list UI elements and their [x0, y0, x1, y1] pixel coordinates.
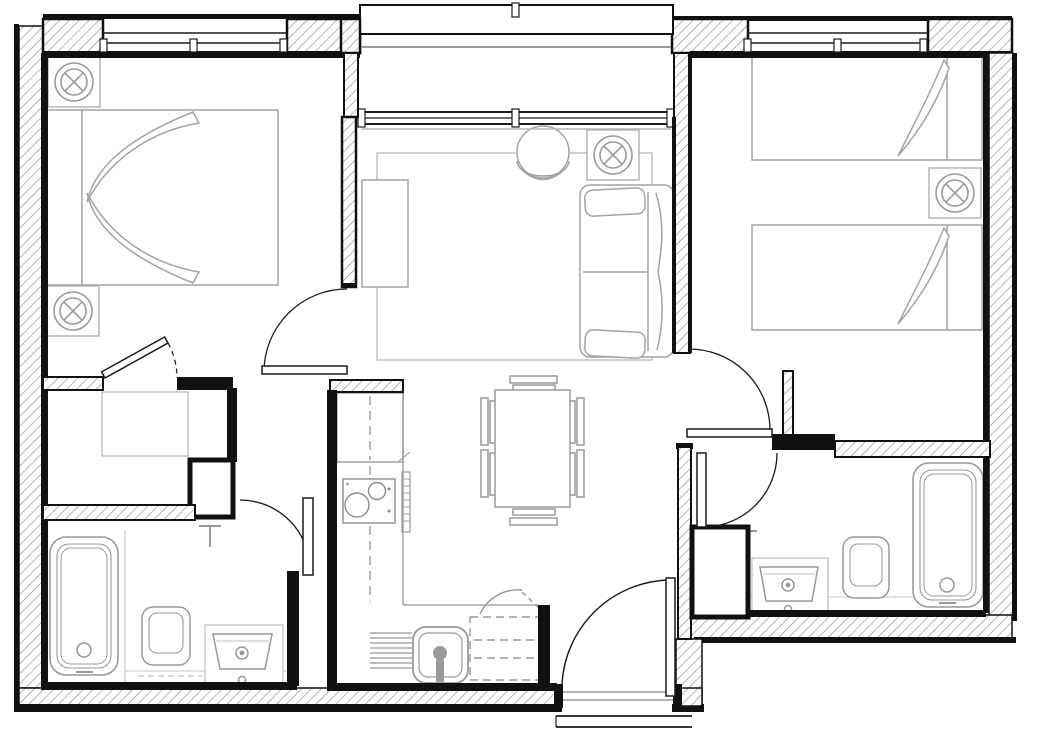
wall-bedroom2-south	[772, 434, 835, 450]
vanity-basin	[205, 625, 283, 688]
wall-pier	[341, 19, 360, 53]
armchair	[517, 126, 569, 180]
ceiling-light-icon	[929, 168, 981, 218]
sofa-pillow	[584, 187, 645, 216]
service-shaft	[692, 527, 748, 617]
dining-set	[481, 376, 584, 525]
dining-table	[495, 390, 570, 507]
wall-top-inner-face	[690, 51, 1012, 58]
tap-icon	[433, 646, 447, 660]
wall-stub	[783, 371, 793, 435]
chair	[577, 450, 584, 497]
door-leaf	[697, 453, 706, 527]
door-leaf	[262, 366, 347, 374]
wall-pier	[43, 19, 103, 53]
wall-closet-top	[43, 377, 103, 390]
ceiling-light-icon	[47, 286, 99, 336]
door-leaf	[666, 578, 675, 696]
hob-2-burner	[343, 479, 395, 523]
wall-entry-lobby	[678, 447, 691, 639]
wall-bathroom1-right	[287, 571, 299, 686]
chair	[577, 398, 584, 445]
sofa-pillow	[584, 329, 645, 358]
bathtub	[50, 537, 118, 675]
service-shaft	[190, 460, 233, 517]
chair	[481, 450, 488, 497]
wall-right	[989, 53, 1013, 617]
door-jamb	[554, 684, 563, 708]
wall-closet-top	[177, 377, 233, 390]
sofa	[580, 185, 674, 359]
wall-kitchen-left	[327, 390, 337, 688]
ceiling-light-icon	[587, 130, 639, 180]
wall-bottom-inner	[41, 682, 297, 690]
room-bedroom-1	[47, 110, 278, 285]
door-leaf	[303, 498, 313, 575]
wall-closet-right	[227, 388, 237, 462]
chair	[513, 509, 555, 515]
wardrobe	[102, 392, 188, 456]
chair	[510, 518, 557, 525]
wall-pier	[672, 19, 748, 53]
bathtub	[913, 463, 983, 607]
wall-top-inner-face	[43, 51, 360, 58]
tv-sideboard	[362, 180, 408, 287]
wall-bathroom2-top	[835, 441, 990, 457]
door-leaf	[687, 429, 772, 437]
vanity-basin	[752, 558, 828, 618]
wall-bedroom1-living	[342, 117, 356, 287]
wall-bottom-right-outer	[694, 637, 1016, 643]
wall-balcony-side	[344, 53, 358, 117]
wall-kitchen-top	[330, 380, 403, 392]
wall-left-inner	[41, 53, 48, 688]
chair	[510, 376, 557, 383]
ceiling-light-icon	[48, 57, 100, 107]
wall-kitchen-right	[538, 605, 550, 688]
wall-bottom-inner	[327, 683, 557, 691]
wall-bottom-outer	[14, 704, 562, 712]
room-closet	[102, 392, 188, 456]
wall-end-cap	[342, 283, 356, 288]
wall-inner-face	[672, 117, 676, 353]
toilet	[843, 537, 889, 598]
wall-right-outer	[1012, 53, 1017, 621]
wall-left	[19, 26, 43, 688]
toilet	[142, 607, 190, 665]
wall-living-bedroom2	[674, 53, 690, 353]
wall-inner-face	[688, 53, 692, 353]
floor-plan-canvas	[0, 0, 1037, 733]
chair	[481, 398, 488, 445]
wall-bathroom1-top	[43, 505, 195, 520]
wall-pier	[928, 19, 1012, 53]
